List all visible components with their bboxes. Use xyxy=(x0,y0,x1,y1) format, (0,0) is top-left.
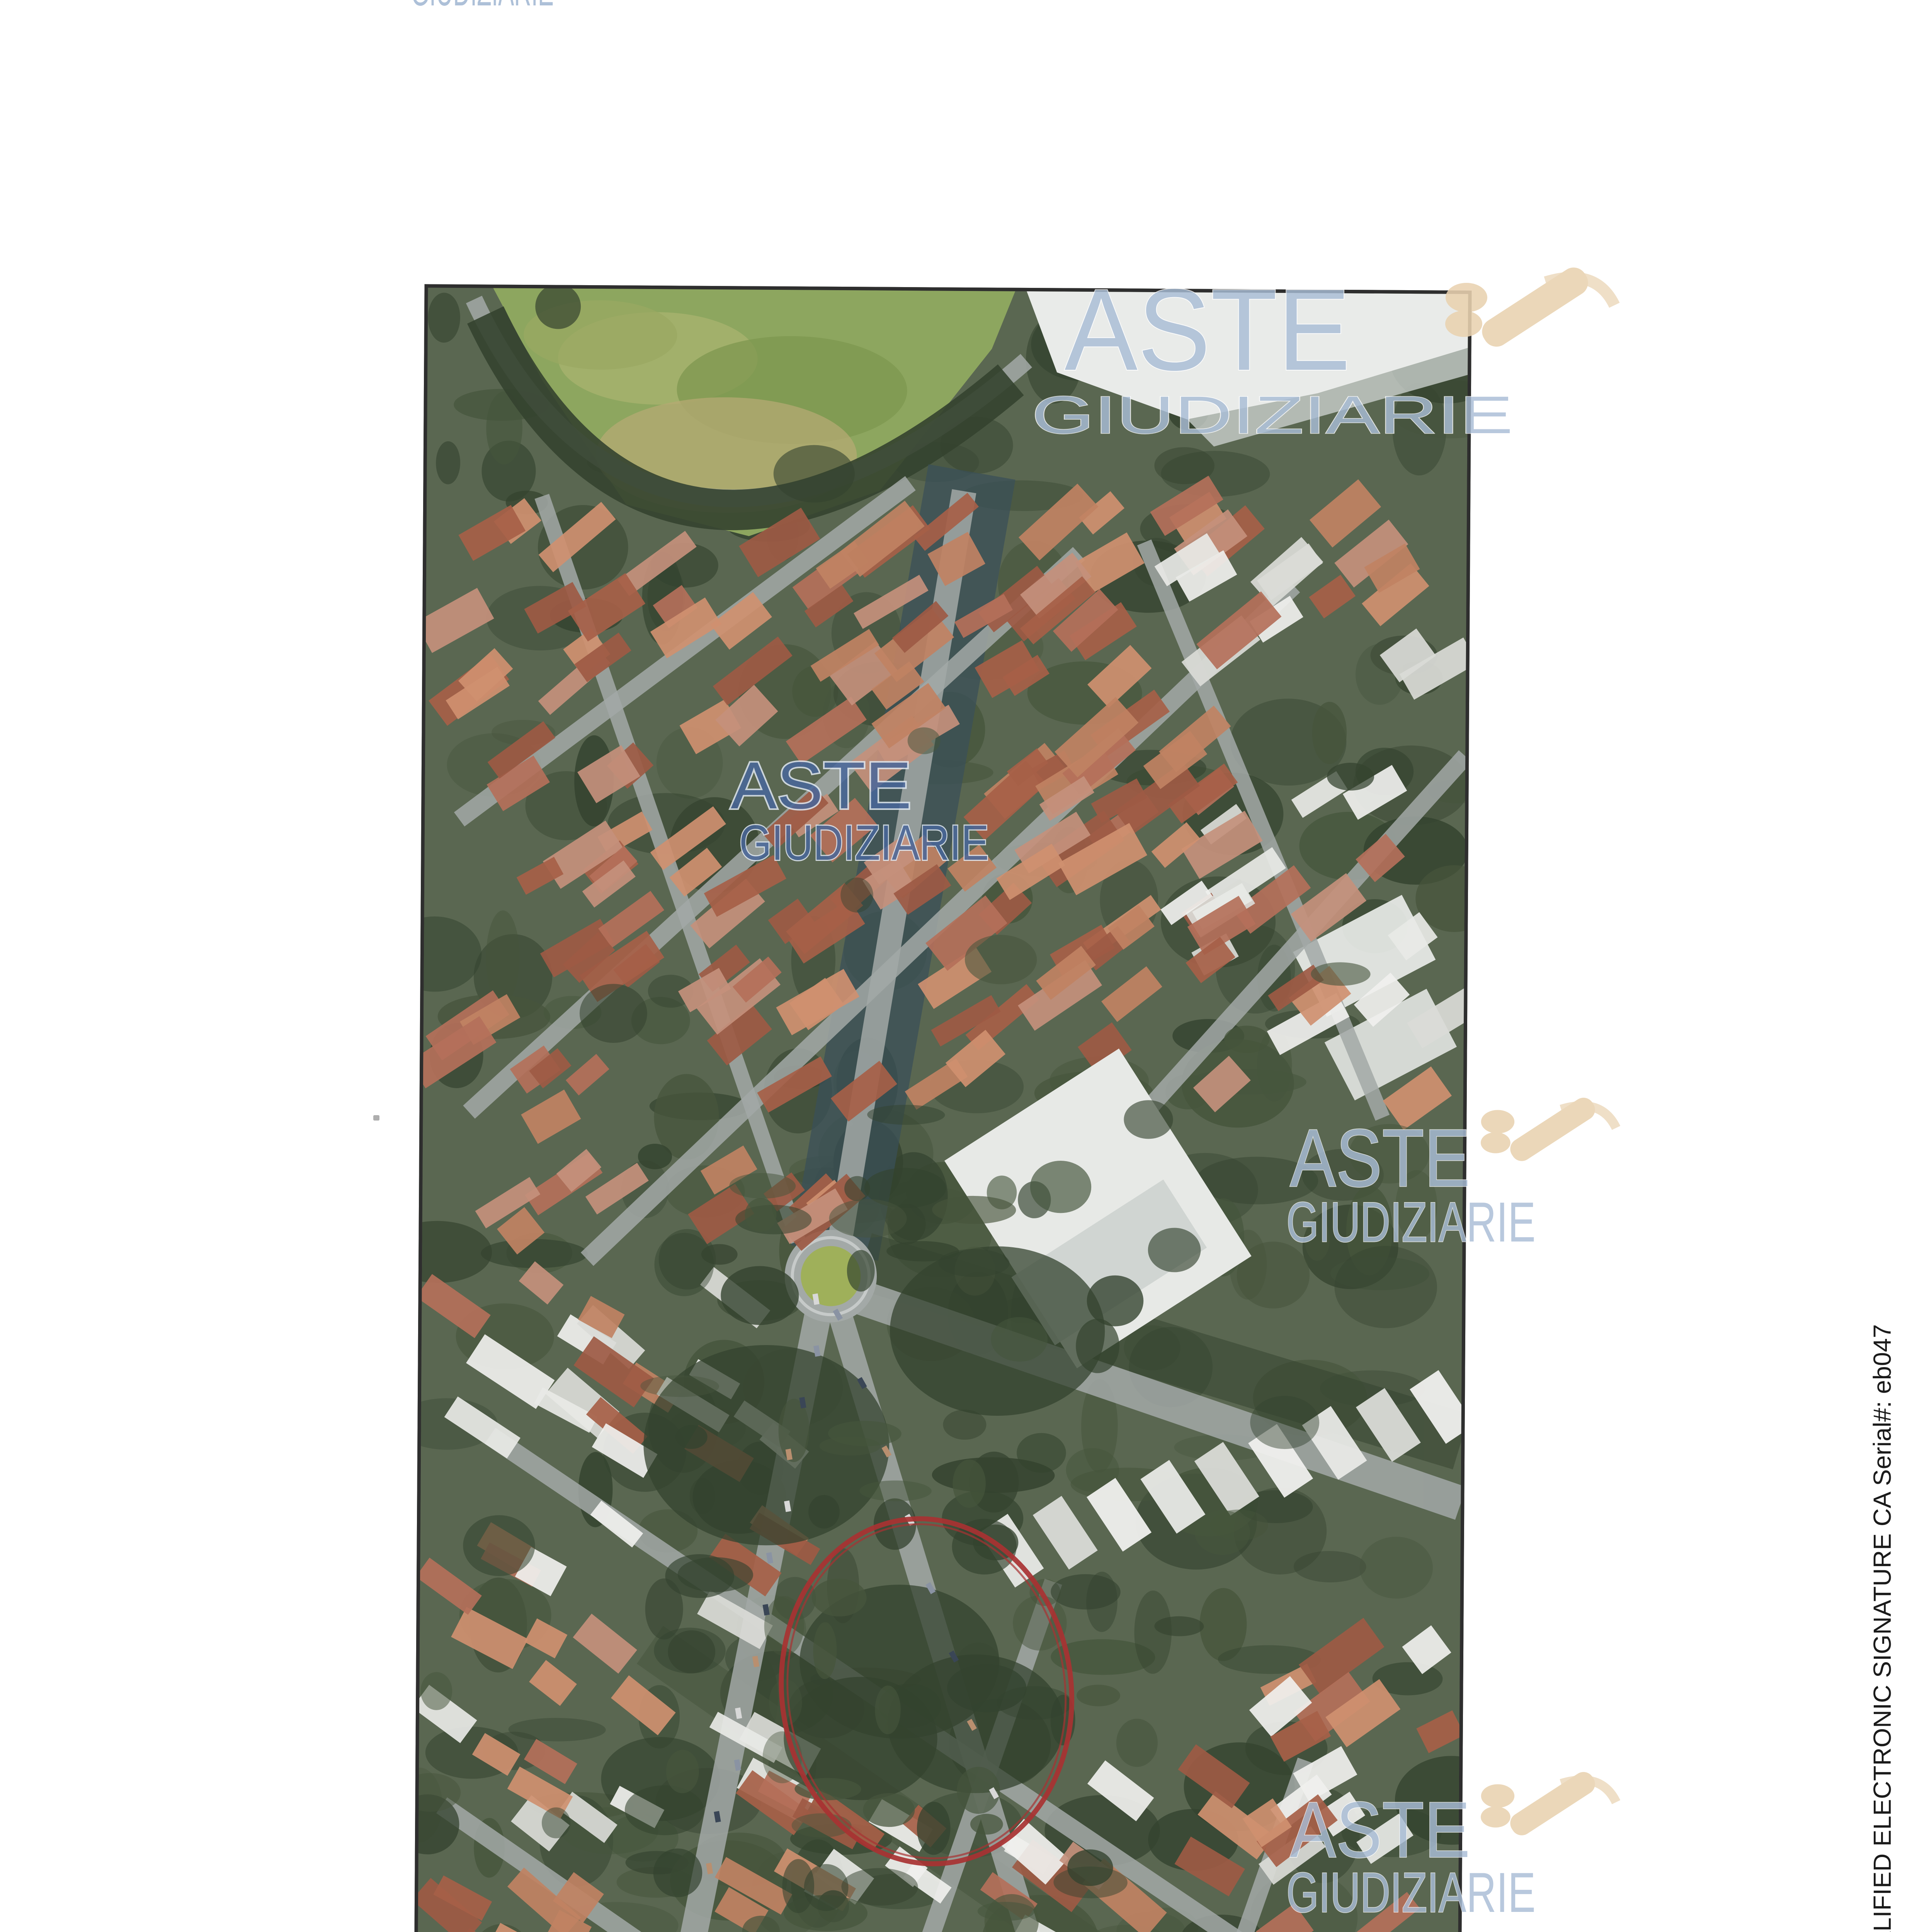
watermark-aste: ASTE xyxy=(1065,265,1351,395)
document-page: GIUDIZIARIE ASTE GIUDIZIARIE ASTE G xyxy=(0,0,1917,1932)
overlay-layer: GIUDIZIARIE ASTE GIUDIZIARIE ASTE G xyxy=(0,0,1917,1932)
watermark-cluster-top: ASTE GIUDIZIARIE xyxy=(1032,265,1513,445)
watermark-giudiziarie: GIUDIZIARIE xyxy=(1032,386,1513,445)
watermark-giudiziarie: GIUDIZIARIE xyxy=(1286,1861,1536,1924)
gavel-icon xyxy=(1445,262,1614,352)
watermark-inner-upper: ASTE GIUDIZIARIE xyxy=(731,748,989,871)
watermark-giudiziarie: GIUDIZIARIE xyxy=(739,815,989,871)
gavel-icon xyxy=(1481,1094,1616,1165)
watermark-aste: ASTE xyxy=(1290,1112,1470,1204)
watermark-top-left-partial: GIUDIZIARIE xyxy=(411,0,554,15)
watermark-aste: ASTE xyxy=(731,748,912,823)
watermark-giudiziarie: GIUDIZIARIE xyxy=(1286,1190,1536,1253)
signature-sidebar-text: Firmato Da: POZZESI RENATO Emesso Da: IN… xyxy=(1868,1324,1896,1932)
scan-speck xyxy=(373,1115,379,1121)
gavel-icon xyxy=(1481,1768,1616,1839)
